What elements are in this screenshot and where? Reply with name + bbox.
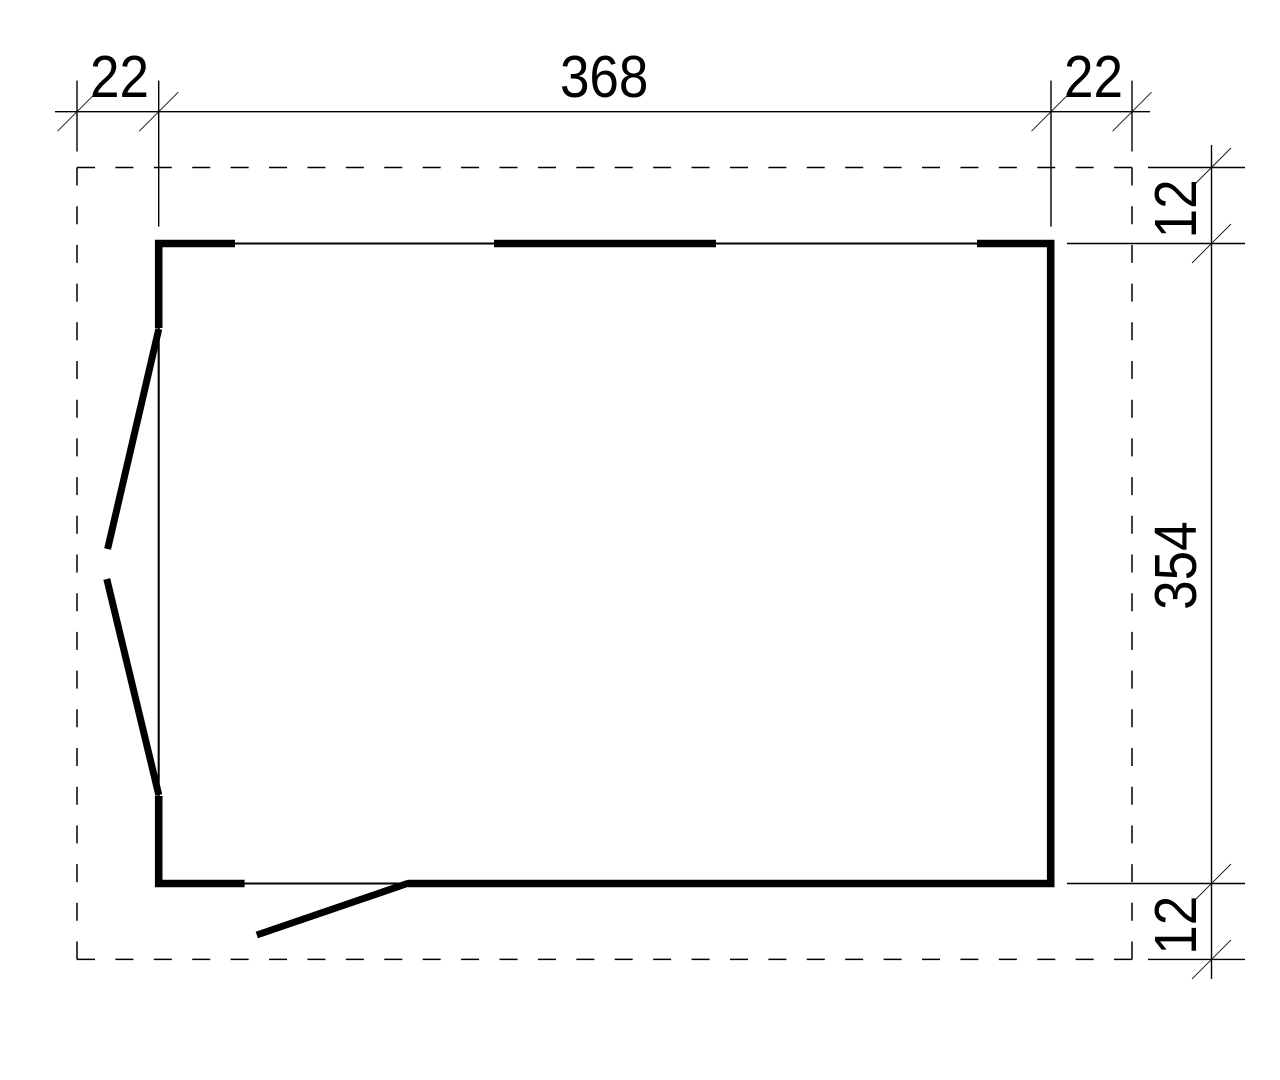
svg-text:12: 12 [1143, 896, 1209, 955]
svg-text:22: 22 [1064, 44, 1123, 110]
svg-text:22: 22 [90, 44, 149, 110]
svg-text:368: 368 [560, 44, 649, 110]
svg-text:354: 354 [1143, 521, 1209, 610]
svg-text:12: 12 [1143, 179, 1209, 238]
